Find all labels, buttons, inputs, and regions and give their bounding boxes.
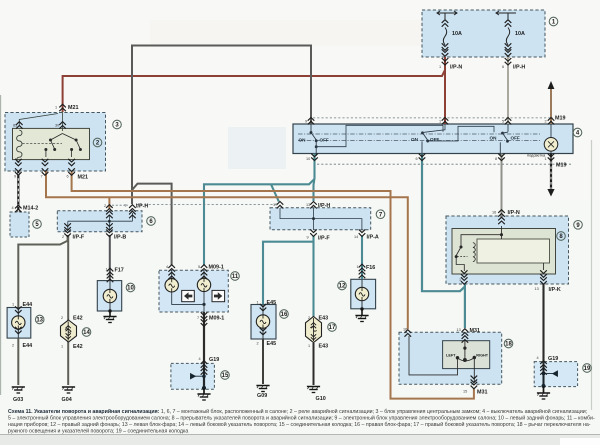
svg-text:2: 2 (104, 204, 106, 208)
svg-text:F16: F16 (366, 265, 375, 271)
svg-text:1: 1 (459, 278, 461, 282)
svg-text:G19: G19 (548, 356, 558, 362)
svg-text:2: 2 (12, 344, 14, 348)
svg-text:ON: ON (299, 138, 307, 143)
svg-text:2: 2 (61, 316, 63, 320)
svg-text:G09: G09 (257, 393, 267, 399)
svg-text:ON: ON (411, 137, 419, 142)
svg-text:1: 1 (439, 120, 441, 124)
svg-text:2: 2 (545, 120, 547, 124)
svg-text:M19: M19 (555, 116, 566, 122)
svg-text:16: 16 (492, 211, 496, 215)
svg-text:9: 9 (307, 236, 309, 240)
svg-text:M09-1: M09-1 (209, 265, 224, 271)
svg-text:I/P-N: I/P-N (450, 65, 462, 71)
svg-text:19: 19 (584, 366, 591, 372)
svg-text:10: 10 (127, 286, 134, 292)
svg-text:1: 1 (12, 303, 14, 307)
svg-text:OFF: OFF (430, 137, 439, 142)
svg-text:4: 4 (12, 206, 14, 210)
svg-text:F17: F17 (115, 268, 124, 274)
svg-text:2: 2 (308, 316, 310, 320)
svg-text:4: 4 (166, 265, 168, 269)
svg-text:1: 1 (357, 265, 359, 269)
svg-text:11: 11 (232, 274, 239, 280)
svg-text:E42: E42 (73, 344, 83, 350)
svg-text:M21: M21 (68, 105, 79, 111)
svg-text:1: 1 (308, 344, 310, 348)
svg-text:OFF: OFF (320, 138, 329, 143)
svg-text:LEFT: LEFT (446, 354, 456, 358)
svg-text:10: 10 (306, 157, 310, 161)
svg-text:E43: E43 (319, 316, 329, 322)
svg-text:2: 2 (257, 342, 259, 346)
svg-text:E45: E45 (267, 341, 277, 347)
svg-text:6: 6 (502, 65, 504, 69)
svg-text:14: 14 (83, 330, 90, 336)
svg-text:1: 1 (61, 345, 63, 349)
svg-text:4: 4 (537, 356, 539, 360)
svg-text:Схема 11. Указатели поворота и: Схема 11. Указатели поворота и аварийная… (8, 408, 587, 415)
svg-text:I/P-F: I/P-F (318, 236, 330, 242)
svg-text:14: 14 (354, 235, 358, 239)
svg-text:I/P-F: I/P-F (73, 235, 85, 241)
svg-text:M31: M31 (477, 390, 488, 396)
svg-text:1: 1 (257, 301, 259, 305)
svg-text:5: 5 (502, 120, 504, 124)
svg-text:G04: G04 (62, 397, 72, 403)
svg-text:E44: E44 (23, 343, 33, 349)
svg-text:M21: M21 (78, 175, 89, 181)
svg-text:4: 4 (199, 357, 201, 361)
svg-text:нация приборов; 12 – правый за: нация приборов; 12 – правый задний фонар… (8, 421, 591, 428)
svg-text:16: 16 (281, 312, 288, 318)
svg-text:I/P-H: I/P-H (513, 65, 525, 71)
svg-text:5: 5 (198, 265, 200, 269)
svg-text:7: 7 (197, 316, 199, 320)
svg-text:OFF: OFF (511, 136, 520, 141)
svg-text:E45: E45 (267, 300, 277, 306)
svg-text:1: 1 (439, 65, 441, 69)
svg-text:ружного освещения и указателей: ружного освещения и указателей поворота;… (8, 428, 188, 435)
svg-text:E43: E43 (319, 344, 329, 350)
svg-text:E42: E42 (73, 316, 83, 322)
svg-text:I/P-K: I/P-K (549, 287, 561, 293)
svg-text:7: 7 (41, 175, 43, 179)
svg-text:подсветка: подсветка (527, 153, 546, 158)
svg-text:2: 2 (62, 235, 64, 239)
svg-text:ON: ON (490, 136, 498, 141)
svg-text:13: 13 (535, 287, 539, 291)
svg-text:M31: M31 (470, 328, 481, 334)
svg-text:10A: 10A (515, 31, 525, 37)
svg-text:9: 9 (14, 175, 16, 179)
svg-text:1: 1 (55, 106, 57, 110)
svg-text:30: 30 (55, 124, 59, 128)
svg-text:M09-1: M09-1 (209, 316, 224, 322)
svg-text:15: 15 (463, 390, 467, 394)
svg-text:G03: G03 (13, 397, 23, 403)
svg-text:1: 1 (106, 268, 108, 272)
svg-text:6: 6 (67, 175, 69, 179)
svg-text:10A: 10A (452, 31, 462, 37)
svg-text:13: 13 (306, 203, 310, 207)
svg-text:G19: G19 (209, 357, 219, 363)
svg-text:9: 9 (305, 120, 307, 124)
svg-text:5 – электронный блок управлени: 5 – электронный блок управления электроо… (8, 415, 595, 422)
svg-text:8: 8 (495, 157, 497, 161)
svg-text:G10: G10 (316, 396, 326, 402)
svg-text:13: 13 (36, 318, 43, 324)
svg-text:12: 12 (339, 284, 346, 290)
svg-text:RIGHT: RIGHT (476, 354, 488, 358)
svg-text:13: 13 (457, 328, 461, 332)
svg-text:18: 18 (505, 342, 512, 348)
svg-text:I/P-H: I/P-H (136, 204, 148, 210)
svg-text:I/P-A: I/P-A (367, 235, 379, 241)
svg-text:I/P-B: I/P-B (114, 235, 126, 241)
svg-text:17: 17 (329, 325, 336, 331)
svg-text:15: 15 (222, 373, 229, 379)
svg-text:16: 16 (403, 328, 407, 332)
svg-text:M14-2: M14-2 (23, 206, 38, 212)
svg-text:85: 85 (13, 124, 17, 128)
svg-text:I/P-H: I/P-H (318, 203, 330, 209)
svg-text:17: 17 (273, 203, 277, 207)
svg-text:9: 9 (125, 204, 127, 208)
svg-text:E44: E44 (23, 302, 33, 308)
svg-text:I/P-N: I/P-N (508, 210, 520, 216)
svg-text:6: 6 (416, 157, 418, 161)
svg-text:M19: M19 (556, 163, 567, 169)
